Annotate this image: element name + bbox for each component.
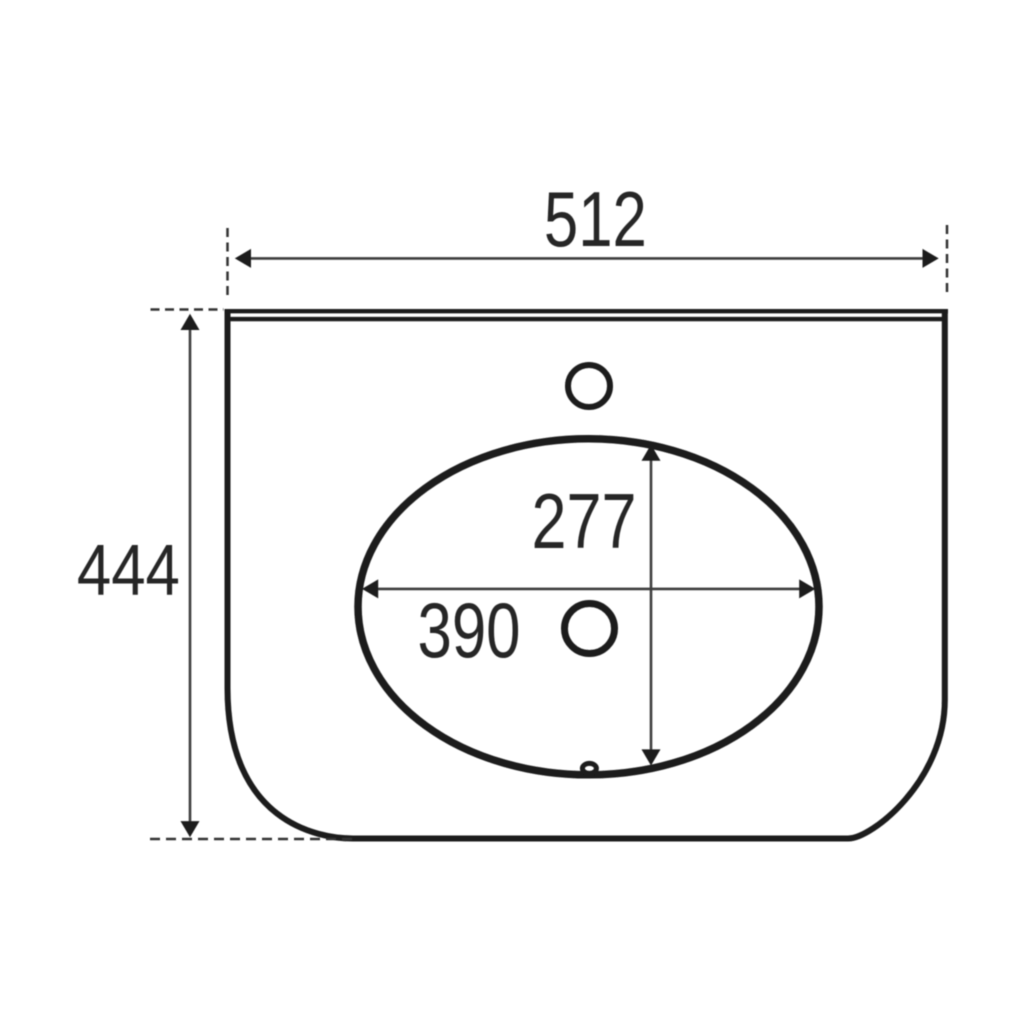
svg-text:277: 277 [532,477,637,565]
svg-text:512: 512 [544,175,647,263]
svg-text:390: 390 [418,586,521,674]
svg-text:444: 444 [77,531,180,611]
